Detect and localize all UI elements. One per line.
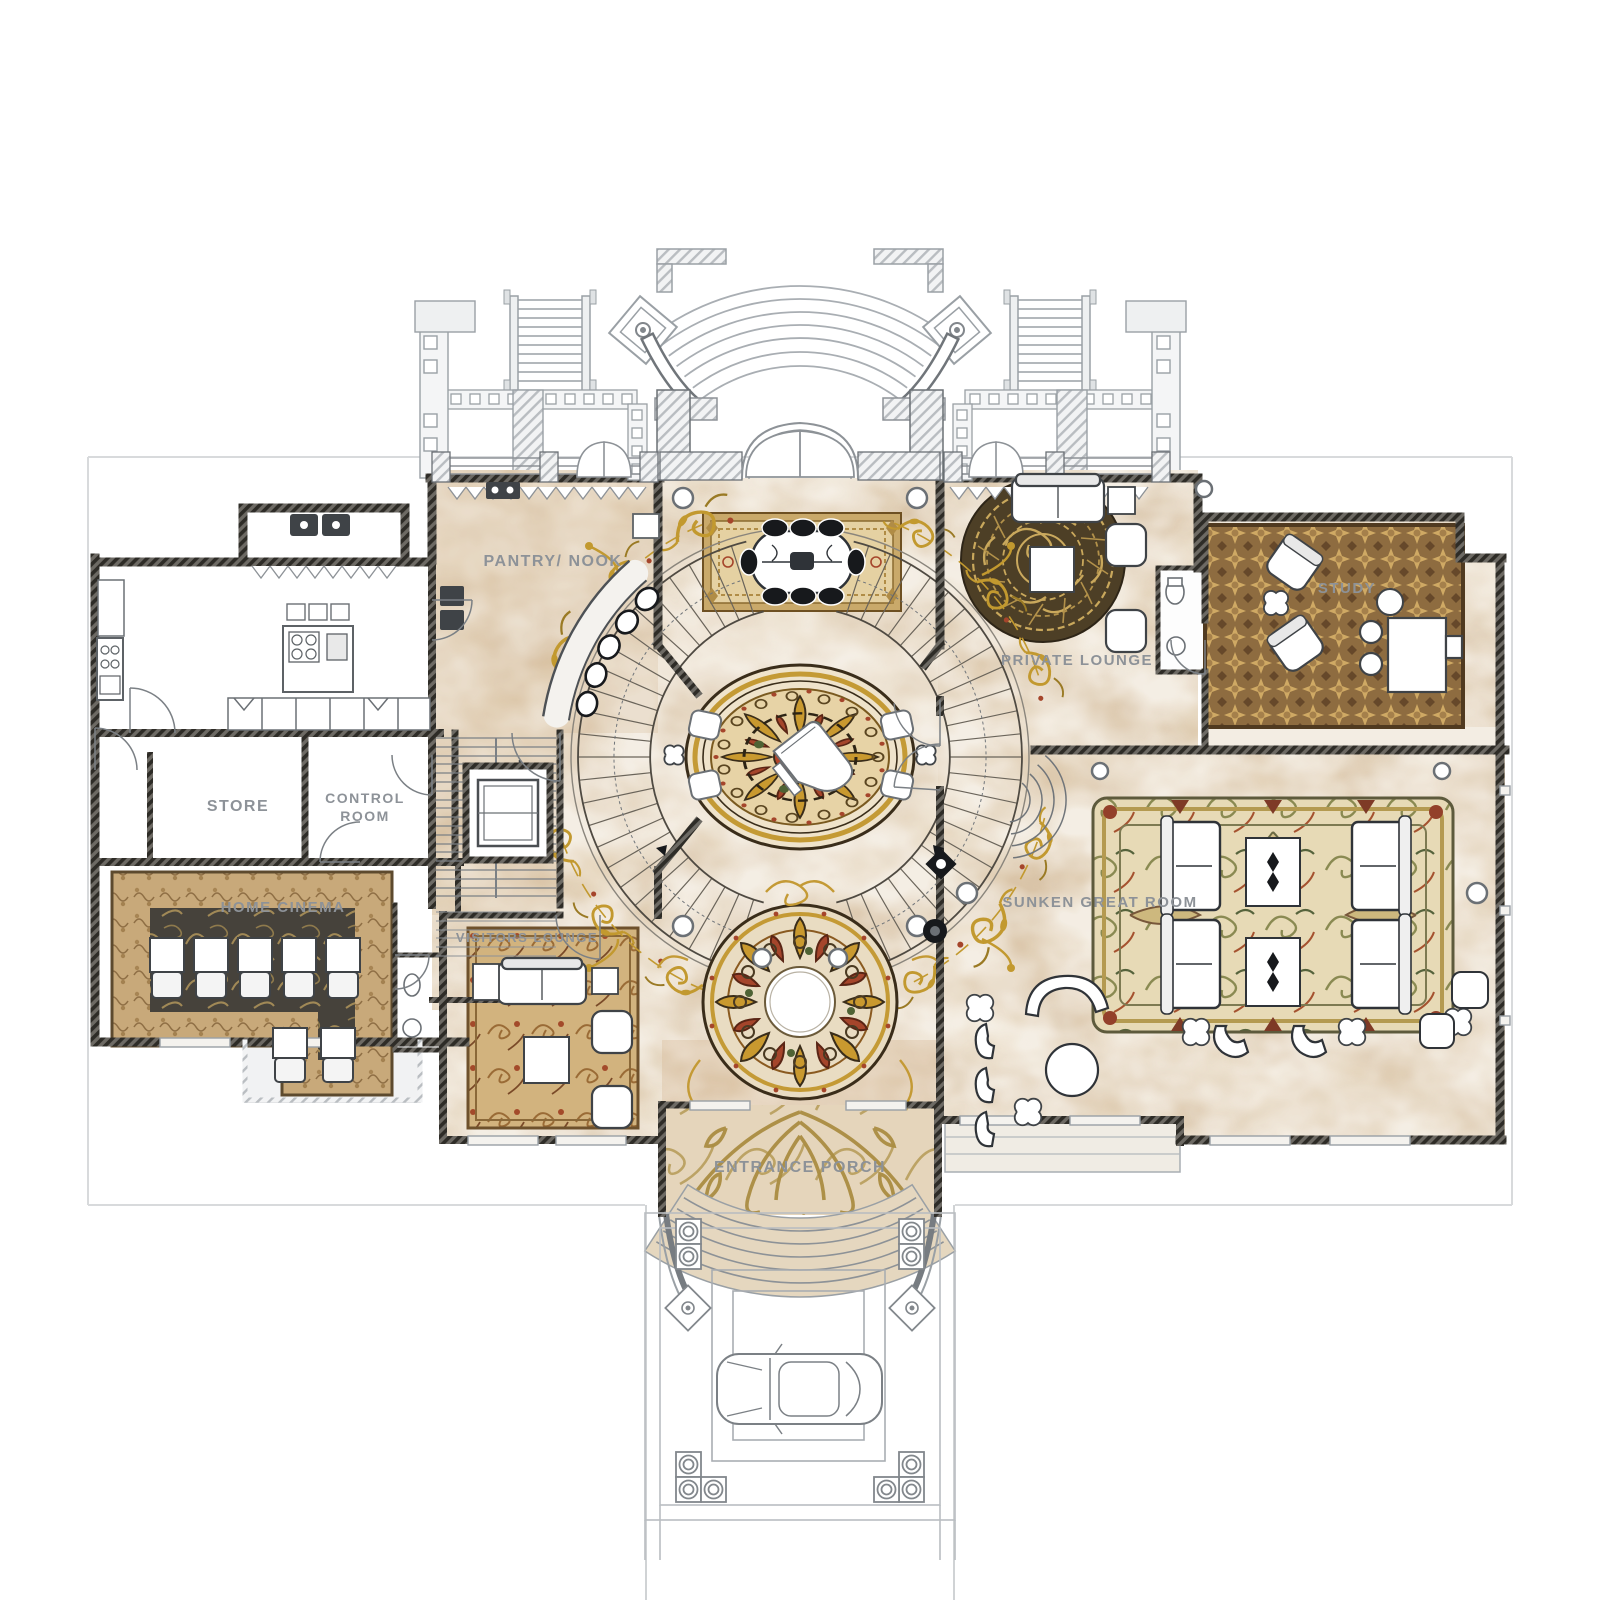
svg-text:VISITORS LOUNGE: VISITORS LOUNGE (456, 930, 598, 945)
svg-text:PRIVATE LOUNGE: PRIVATE LOUNGE (1001, 652, 1153, 669)
svg-text:STUDY: STUDY (1318, 580, 1376, 597)
svg-text:ROOM: ROOM (340, 808, 390, 824)
svg-text:HOME CINEMA: HOME CINEMA (221, 899, 346, 916)
svg-text:ENTRANCE PORCH: ENTRANCE PORCH (714, 1159, 886, 1176)
svg-text:PANTRY/ NOOK: PANTRY/ NOOK (484, 553, 623, 570)
svg-text:CONTROL: CONTROL (325, 790, 405, 806)
svg-text:SUNKEN GREAT ROOM: SUNKEN GREAT ROOM (1002, 894, 1197, 911)
svg-text:STORE: STORE (207, 798, 269, 815)
